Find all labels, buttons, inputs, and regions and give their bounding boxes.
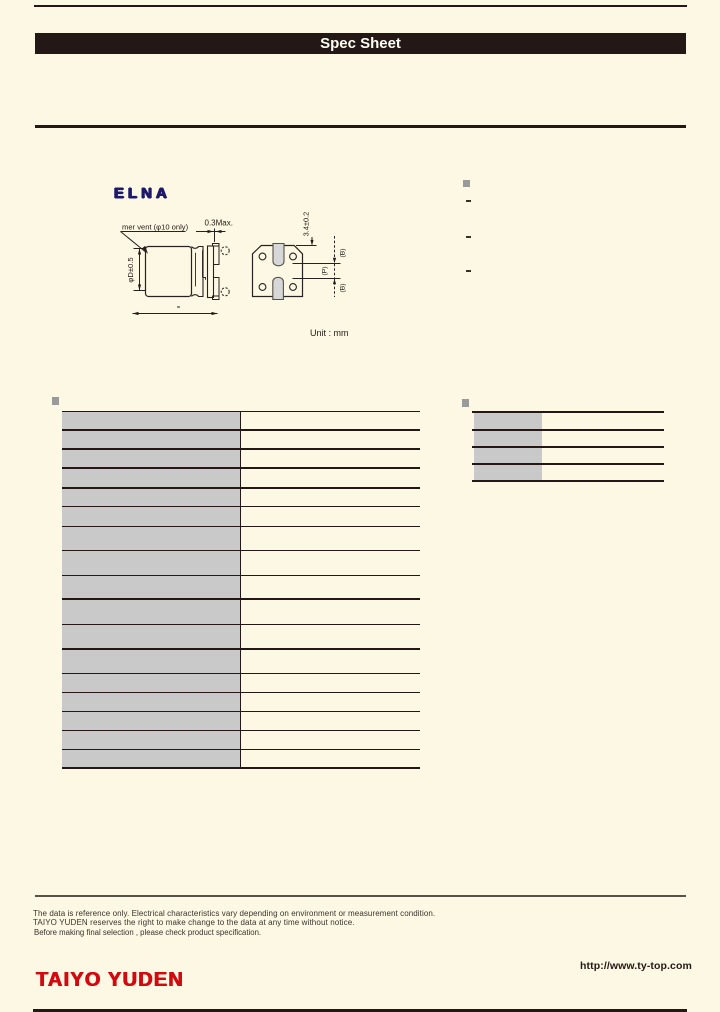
svg-text:3.4±0.2: 3.4±0.2 — [302, 212, 311, 237]
svg-text:(B): (B) — [340, 283, 347, 292]
svg-text:(B): (B) — [340, 248, 347, 257]
svg-text:mer vent (φ10 only): mer vent (φ10 only) — [122, 223, 189, 232]
svg-text:0.3Max.: 0.3Max. — [205, 219, 233, 228]
svg-text:(P): (P) — [322, 266, 329, 275]
svg-text:φD±0.5: φD±0.5 — [126, 257, 135, 282]
